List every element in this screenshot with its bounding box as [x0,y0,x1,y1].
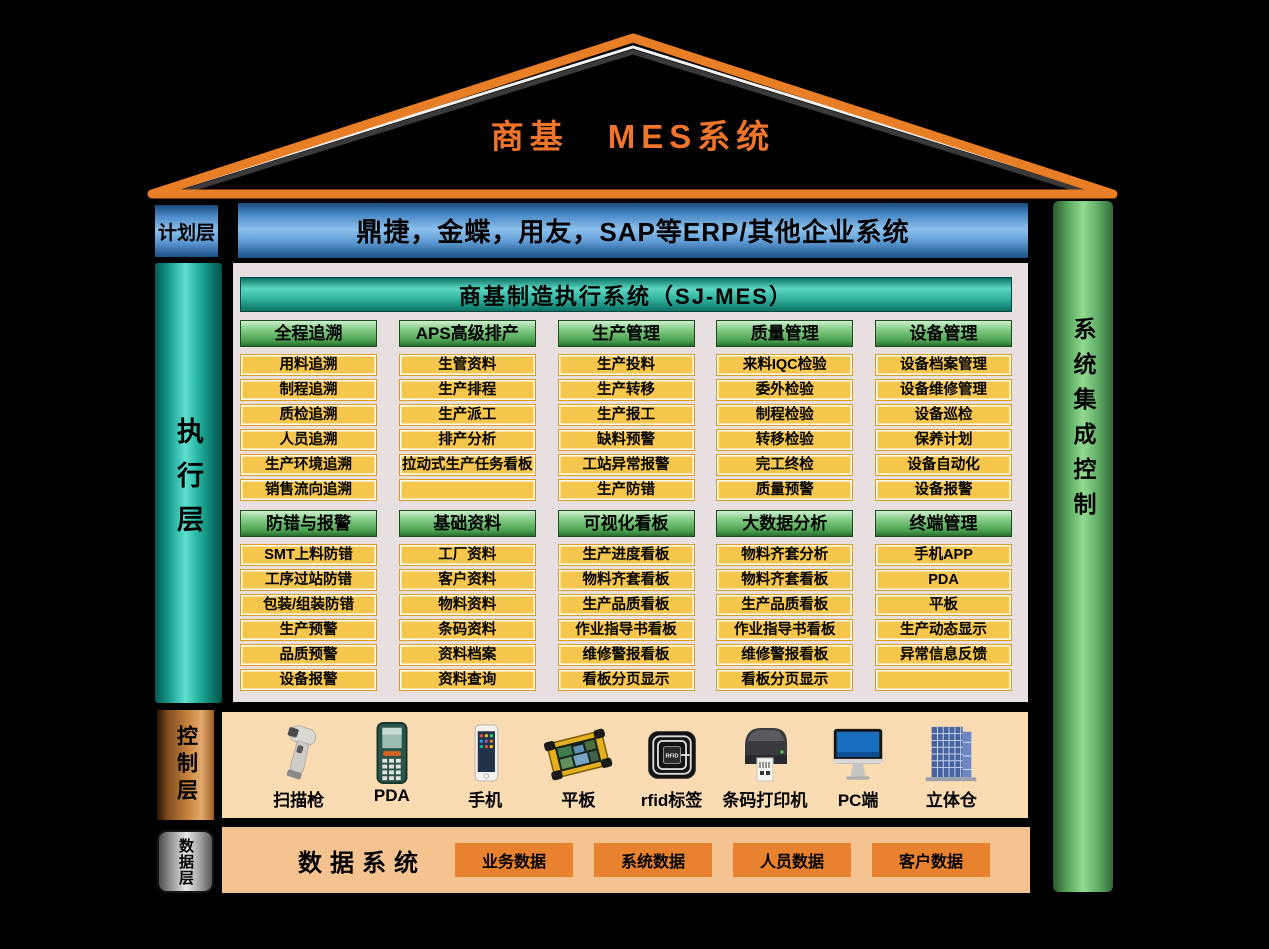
device-label: rfid标签 [641,786,702,811]
module-full-trace: 全程追溯 用料追溯 制程追溯 质检追溯 人员追溯 生产环境追溯 销售流向追溯 [240,320,377,501]
device-scanner: 扫描枪 [252,716,345,818]
device-tablet: 平板 [532,716,625,818]
device-phone: 手机 [439,716,532,818]
module-item: 生产派工 [399,404,536,426]
module-quality-mgmt: 质量管理 来料IQC检验 委外检验 制程检验 转移检验 完工终检 质量预警 [716,320,853,501]
diagram-title: 商基 MES系统 [238,110,1028,158]
module-item: 人员追溯 [240,429,377,451]
tablet-icon [543,716,613,786]
module-item: 完工终检 [716,454,853,476]
control-layer-text: 控制层 [171,725,201,806]
system-integration-text: 系统集成控制 [1066,317,1100,527]
svg-text:RFID: RFID [665,753,678,759]
module-item: PDA [875,569,1012,591]
module-grid-row-2: 防错与报警 SMT上料防错 工序过站防错 包装/组装防错 生产预警 品质预警 设… [240,510,1012,691]
module-terminal-mgmt: 终端管理 手机APP PDA 平板 生产动态显示 异常信息反馈 [875,510,1012,691]
layer-label-control: 控制层 [157,710,214,820]
module-header: APS高级排产 [399,320,536,347]
module-item: 生产报工 [558,404,695,426]
data-button-business: 业务数据 [455,843,573,877]
module-item: 物料资料 [399,594,536,616]
module-header: 质量管理 [716,320,853,347]
sj-mes-header: 商基制造执行系统（SJ-MES） [240,277,1012,312]
module-item [399,479,536,501]
mes-panel: 商基制造执行系统（SJ-MES） 全程追溯 用料追溯 制程追溯 质检追溯 人员追… [233,263,1028,702]
module-item: 生产品质看板 [716,594,853,616]
module-item: 转移检验 [716,429,853,451]
module-big-data-analysis: 大数据分析 物料齐套分析 物料齐套看板 生产品质看板 作业指导书看板 维修警报看… [716,510,853,691]
data-button-personnel: 人员数据 [733,843,851,877]
control-devices-panel: 扫描枪 PDA [222,712,1028,818]
module-item: 用料追溯 [240,354,377,376]
module-item: 作业指导书看板 [558,619,695,641]
module-equipment-mgmt: 设备管理 设备档案管理 设备维修管理 设备巡检 保养计划 设备自动化 设备报警 [875,320,1012,501]
module-item: 设备巡检 [875,404,1012,426]
module-item: 维修警报看板 [558,644,695,666]
device-pc: PC端 [812,716,905,818]
module-item: 维修警报看板 [716,644,853,666]
barcode-printer-icon [733,716,797,786]
device-label: 立体仓 [926,786,977,811]
module-item: 资料查询 [399,669,536,691]
device-pda: PDA [345,716,438,818]
module-header: 生产管理 [558,320,695,347]
module-header: 可视化看板 [558,510,695,537]
module-item: 质量预警 [716,479,853,501]
module-item: 生产转移 [558,379,695,401]
module-item: 设备档案管理 [875,354,1012,376]
module-header: 设备管理 [875,320,1012,347]
module-header: 大数据分析 [716,510,853,537]
module-item: 保养计划 [875,429,1012,451]
module-item: 看板分页显示 [716,669,853,691]
device-label: 平板 [561,786,595,811]
data-system-title: 数据系统 [262,827,462,893]
data-system-panel: 数据系统 业务数据 系统数据 人员数据 客户数据 [222,827,1030,893]
module-item: 生产环境追溯 [240,454,377,476]
module-item: 质检追溯 [240,404,377,426]
module-item: 委外检验 [716,379,853,401]
module-basic-data: 基础资料 工厂资料 客户资料 物料资料 条码资料 资料档案 资料查询 [399,510,536,691]
layer-label-data: 数据层 [157,830,214,893]
layer-label-planning: 计划层 [155,205,218,257]
module-item: 资料档案 [399,644,536,666]
scanner-gun-icon [268,716,330,786]
module-item: 制程追溯 [240,379,377,401]
rfid-tag-icon: RFID [642,716,702,786]
module-item: 生产进度看板 [558,544,695,566]
module-grid-row-1: 全程追溯 用料追溯 制程追溯 质检追溯 人员追溯 生产环境追溯 销售流向追溯 A… [240,320,1012,501]
module-item: 设备自动化 [875,454,1012,476]
module-item: 物料齐套分析 [716,544,853,566]
system-integration-pillar: 系统集成控制 [1053,201,1113,892]
data-button-system: 系统数据 [594,843,712,877]
mes-architecture-diagram: 商基 MES系统 计划层 鼎捷，金蝶，用友，SAP等ERP/其他企业系统 执行层… [0,0,1269,949]
data-button-customer: 客户数据 [872,843,990,877]
device-barcode-printer: 条码打印机 [718,716,811,818]
module-header: 基础资料 [399,510,536,537]
module-item: 作业指导书看板 [716,619,853,641]
device-label: 扫描枪 [273,786,324,811]
pda-icon [361,716,423,786]
module-item: 平板 [875,594,1012,616]
module-item: 包装/组装防错 [240,594,377,616]
device-label: 手机 [468,786,502,811]
module-item: 品质预警 [240,644,377,666]
module-item: SMT上料防错 [240,544,377,566]
module-production-mgmt: 生产管理 生产投料 生产转移 生产报工 缺料预警 工站异常报警 生产防错 [558,320,695,501]
module-header: 终端管理 [875,510,1012,537]
module-visual-kanban: 可视化看板 生产进度看板 物料齐套看板 生产品质看板 作业指导书看板 维修警报看… [558,510,695,691]
module-item: 生产品质看板 [558,594,695,616]
module-item: 物料齐套看板 [558,569,695,591]
phone-icon [456,716,514,786]
module-item: 生产预警 [240,619,377,641]
module-item: 生产排程 [399,379,536,401]
module-item: 生产防错 [558,479,695,501]
device-label: PC端 [838,786,879,811]
module-item: 生产投料 [558,354,695,376]
module-item: 设备维修管理 [875,379,1012,401]
layer-label-execution: 执行层 [155,263,222,703]
module-item: 工序过站防错 [240,569,377,591]
device-warehouse: 立体仓 [905,716,998,818]
module-aps-scheduling: APS高级排产 生管资料 生产排程 生产派工 排产分析 拉动式生产任务看板 [399,320,536,501]
data-layer-text: 数据层 [175,838,196,886]
data-buttons-row: 业务数据 系统数据 人员数据 客户数据 [455,843,990,877]
module-item: 工厂资料 [399,544,536,566]
device-label: PDA [374,786,410,806]
execution-layer-text: 执行层 [169,417,208,549]
module-item: 客户资料 [399,569,536,591]
module-item: 设备报警 [875,479,1012,501]
module-item: 拉动式生产任务看板 [399,454,536,476]
module-item: 来料IQC检验 [716,354,853,376]
module-header: 防错与报警 [240,510,377,537]
module-item: 物料齐套看板 [716,569,853,591]
module-item: 销售流向追溯 [240,479,377,501]
pc-monitor-icon [825,716,891,786]
device-label: 条码打印机 [722,786,807,811]
module-item: 工站异常报警 [558,454,695,476]
module-item [875,669,1012,691]
module-item: 缺料预警 [558,429,695,451]
erp-systems-bar: 鼎捷，金蝶，用友，SAP等ERP/其他企业系统 [238,203,1028,258]
module-item: 看板分页显示 [558,669,695,691]
module-item: 排产分析 [399,429,536,451]
module-item: 设备报警 [240,669,377,691]
device-rfid-tag: RFID rfid标签 [625,716,718,818]
module-item: 条码资料 [399,619,536,641]
module-item: 异常信息反馈 [875,644,1012,666]
warehouse-icon [920,716,982,786]
module-header: 全程追溯 [240,320,377,347]
module-item: 生管资料 [399,354,536,376]
module-item: 生产动态显示 [875,619,1012,641]
module-item: 制程检验 [716,404,853,426]
module-error-proofing-alarm: 防错与报警 SMT上料防错 工序过站防错 包装/组装防错 生产预警 品质预警 设… [240,510,377,691]
module-item: 手机APP [875,544,1012,566]
